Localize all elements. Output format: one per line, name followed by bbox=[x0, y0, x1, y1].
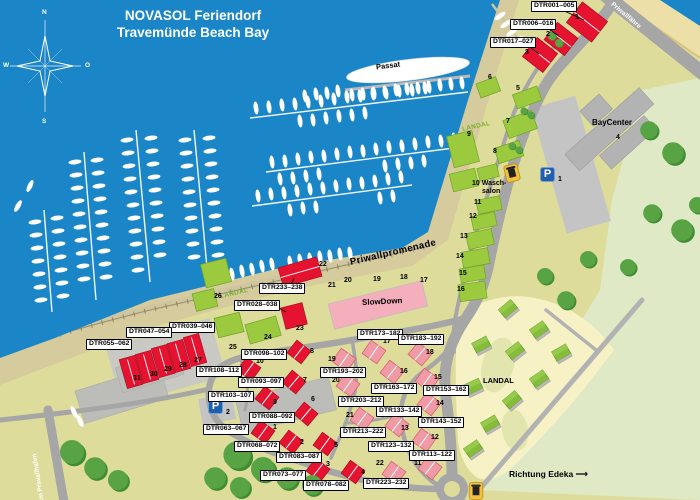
waste-bin-icon bbox=[469, 483, 483, 500]
unit-label: DTR068–072 bbox=[234, 441, 280, 452]
number-badge: 2 bbox=[546, 31, 550, 38]
unit-label: DTR028–038 bbox=[234, 300, 280, 311]
number-badge: 8 bbox=[493, 148, 497, 155]
unit-label: DTR153–162 bbox=[423, 385, 469, 396]
number-badge: 16 bbox=[400, 368, 408, 375]
unit-label: DTR078–082 bbox=[303, 480, 349, 491]
number-badge: 18 bbox=[426, 349, 434, 356]
direction-text: Richtung Edeka bbox=[509, 469, 573, 479]
unit-label: DTR183–192 bbox=[398, 334, 444, 345]
number-badge: 20 bbox=[344, 277, 352, 284]
site-map: NOVASOL Feriendorf Travemünde Beach Bay … bbox=[0, 0, 700, 500]
unit-label: DTR055–062 bbox=[86, 339, 132, 350]
number-badge: 17 bbox=[420, 277, 428, 284]
number-badge: 30 bbox=[150, 371, 158, 378]
unit-label: DTR233–238 bbox=[259, 283, 305, 294]
parking-sign-p1: P bbox=[540, 167, 555, 182]
laundry-word1: Wasch- bbox=[482, 180, 507, 187]
unit-label: DTR223–232 bbox=[363, 478, 409, 489]
compass-north: N bbox=[42, 9, 47, 16]
unit-label: DTR163–172 bbox=[371, 383, 417, 394]
number-badge: 1 bbox=[575, 14, 579, 21]
laundry-number: 10 bbox=[472, 180, 480, 187]
number-badge: 25 bbox=[229, 344, 237, 351]
parking-number-1: 1 bbox=[558, 176, 562, 183]
unit-label: DTR203–212 bbox=[338, 396, 384, 407]
number-badge: 2 bbox=[300, 439, 304, 446]
unit-label: DTR103–107 bbox=[208, 391, 254, 402]
unit-label: DTR083–087 bbox=[276, 452, 322, 463]
unit-label: DTR039–046 bbox=[169, 322, 215, 333]
number-badge: 27 bbox=[194, 357, 202, 364]
unit-label: DTR047–054 bbox=[126, 327, 172, 338]
number-badge: 8 bbox=[310, 348, 314, 355]
number-badge: 11 bbox=[474, 199, 481, 206]
number-badge: 23 bbox=[296, 325, 304, 332]
number-badge: 24 bbox=[264, 334, 272, 341]
unit-label: DTR088–092 bbox=[249, 412, 295, 423]
number-badge: 3 bbox=[326, 461, 330, 468]
number-badge: 12 bbox=[431, 434, 439, 441]
number-badge: 14 bbox=[456, 253, 464, 260]
unit-label: DTR006–016 bbox=[510, 19, 556, 30]
number-badge: 9 bbox=[273, 399, 277, 406]
number-badge: 15 bbox=[459, 270, 467, 277]
unit-label: DTR123–132 bbox=[368, 441, 414, 452]
laundry-label: 10 Wasch-salon bbox=[472, 180, 506, 196]
number-badge: 28 bbox=[179, 362, 187, 369]
number-badge: 6 bbox=[488, 74, 492, 81]
map-title: NOVASOL Feriendorf Travemünde Beach Bay bbox=[108, 7, 278, 41]
number-badge: 21 bbox=[346, 412, 354, 419]
unit-label: DTR108–112 bbox=[196, 366, 242, 377]
number-badge: 22 bbox=[376, 460, 384, 467]
compass-west: W bbox=[3, 62, 9, 69]
compass-south: S bbox=[42, 118, 46, 125]
number-badge: 4 bbox=[361, 469, 365, 476]
landal-village-label: LANDAL bbox=[483, 376, 514, 385]
unit-label: DTR093–097 bbox=[238, 377, 284, 388]
number-badge: 13 bbox=[460, 233, 468, 240]
unit-label: DTR113–122 bbox=[409, 450, 455, 461]
unit-label: DTR143–152 bbox=[418, 417, 464, 428]
number-badge: 15 bbox=[434, 374, 442, 381]
unit-label: DTR173–182 bbox=[357, 329, 403, 340]
number-badge: 6 bbox=[311, 396, 315, 403]
unit-label: DTR193–202 bbox=[320, 367, 366, 378]
direction-arrow-icon: ⟶ bbox=[576, 469, 588, 479]
unit-label: DTR213–222 bbox=[340, 427, 386, 438]
number-badge: 19 bbox=[328, 356, 336, 363]
unit-label: DTR017–027 bbox=[490, 37, 536, 48]
map-title-line1: NOVASOL Feriendorf bbox=[108, 7, 278, 24]
number-badge: 12 bbox=[469, 213, 477, 220]
number-badge: 19 bbox=[373, 276, 381, 283]
number-badge: 7 bbox=[303, 377, 307, 384]
number-badge: 18 bbox=[400, 274, 408, 281]
number-badge: 16 bbox=[457, 286, 465, 293]
number-badge: 11 bbox=[414, 460, 421, 467]
unit-label: DTR098–102 bbox=[241, 349, 287, 360]
parking-number-2: 2 bbox=[226, 409, 230, 416]
brand-name: NOVASOL bbox=[125, 8, 191, 23]
number-badge: 13 bbox=[401, 425, 409, 432]
number-badge: 5 bbox=[516, 85, 520, 92]
number-badge: 29 bbox=[164, 366, 172, 373]
direction-edeka-label: Richtung Edeka ⟶ bbox=[509, 469, 588, 480]
number-badge: 3 bbox=[525, 49, 529, 56]
number-badge: 4 bbox=[616, 134, 620, 141]
baycenter-label: BayCenter bbox=[592, 118, 632, 127]
number-badge: 22 bbox=[319, 261, 327, 268]
map-title-line2: Travemünde Beach Bay bbox=[108, 24, 278, 41]
number-badge: 21 bbox=[328, 282, 336, 289]
number-badge: 9 bbox=[467, 131, 471, 138]
roundabout bbox=[440, 477, 464, 500]
unit-label: DTR133–142 bbox=[376, 406, 422, 417]
title-suffix: Feriendorf bbox=[191, 8, 262, 23]
map-canvas bbox=[0, 0, 700, 500]
compass-east: O bbox=[85, 62, 90, 69]
number-badge: 5 bbox=[334, 442, 338, 449]
unit-label: DTR063–067 bbox=[203, 424, 249, 435]
laundry-word2: salon bbox=[482, 188, 500, 195]
number-badge: 31 bbox=[133, 375, 141, 382]
unit-label: DTR073–077 bbox=[260, 470, 306, 481]
number-badge: 1 bbox=[273, 424, 277, 431]
number-badge: 7 bbox=[506, 118, 510, 125]
number-badge: 14 bbox=[436, 400, 444, 407]
number-badge: 26 bbox=[214, 293, 222, 300]
unit-label: DTR001–005 bbox=[531, 1, 577, 12]
number-badge: 20 bbox=[332, 377, 340, 384]
